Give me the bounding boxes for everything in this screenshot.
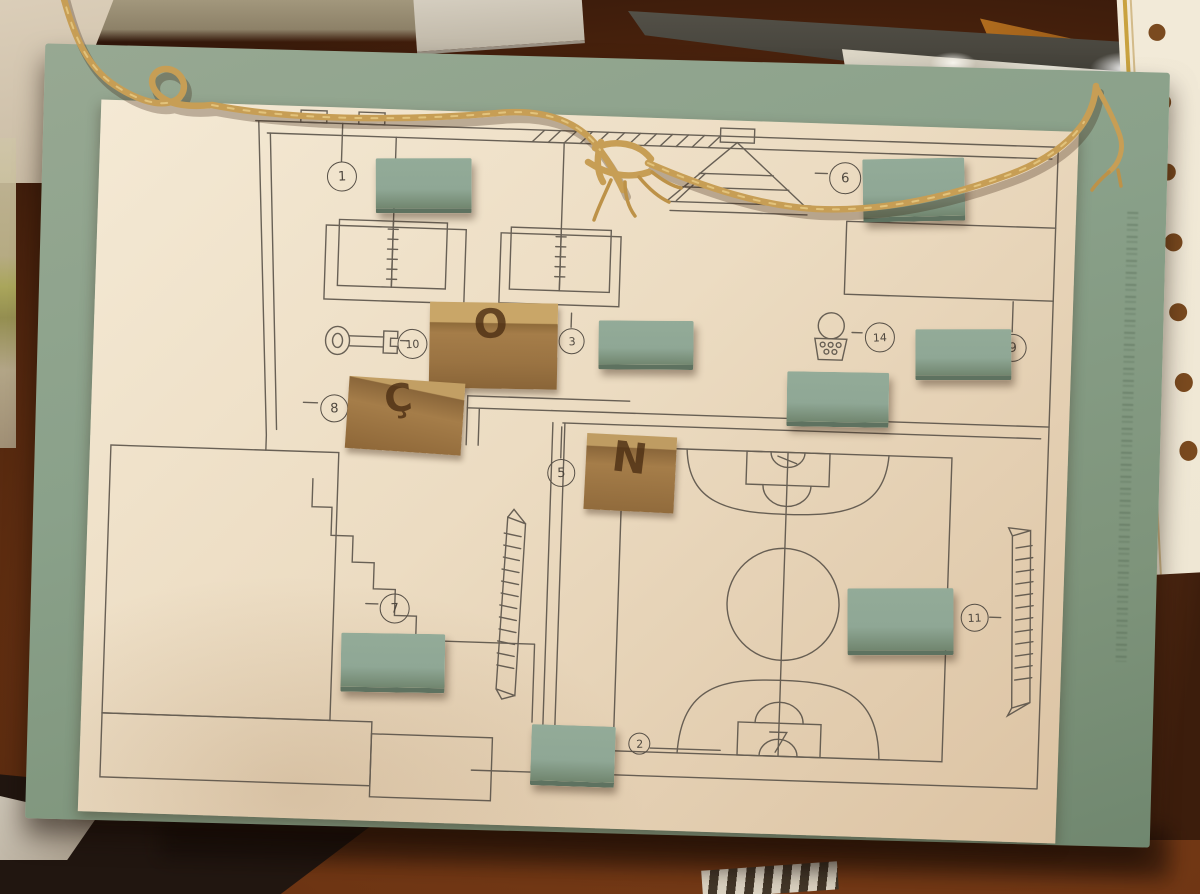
felt-cover: [862, 158, 965, 223]
tractor-feed-hole: [1148, 23, 1166, 41]
felt-cover: [786, 371, 889, 428]
background-shelf: [70, 0, 440, 42]
tractor-feed-hole: [1179, 440, 1198, 461]
flap-letter: N: [610, 435, 650, 481]
kraft-flap: Ç: [345, 376, 466, 456]
open-book-tables: [324, 135, 624, 309]
green-board: O Ç N 1 6 3 14 9 10 8 5: [25, 43, 1170, 847]
tractor-feed-hole: [1174, 373, 1193, 393]
faint-edge-text: [1116, 212, 1139, 662]
felt-cover: [340, 633, 445, 694]
flap-letter: Ç: [382, 378, 414, 419]
key-icon: [325, 326, 398, 356]
tractor-feed-hole: [1169, 303, 1188, 322]
map-paper: O Ç N 1 6 3 14 9 10 8 5: [78, 99, 1079, 843]
bench-icon: [496, 509, 526, 700]
left-rooms: [100, 445, 502, 801]
paper-edge-strip: [0, 138, 16, 448]
stepped-pyramid-icon: [666, 126, 814, 215]
flap-letter: O: [472, 303, 509, 346]
felt-cover: [530, 724, 616, 788]
felt-cover: [598, 320, 693, 370]
tractor-feed-hole: [1164, 233, 1183, 252]
top-right-room: [844, 221, 1055, 301]
kraft-flap: N: [583, 433, 677, 513]
kraft-flap: O: [429, 302, 558, 390]
ball-basket-icon: [814, 312, 848, 360]
felt-cover: [376, 158, 472, 213]
felt-cover: [847, 588, 953, 655]
bench-icon: [1002, 528, 1036, 717]
photo-scene: O Ç N 1 6 3 14 9 10 8 5: [0, 0, 1200, 894]
gray-paper-object: [413, 0, 585, 55]
felt-cover: [915, 329, 1011, 380]
